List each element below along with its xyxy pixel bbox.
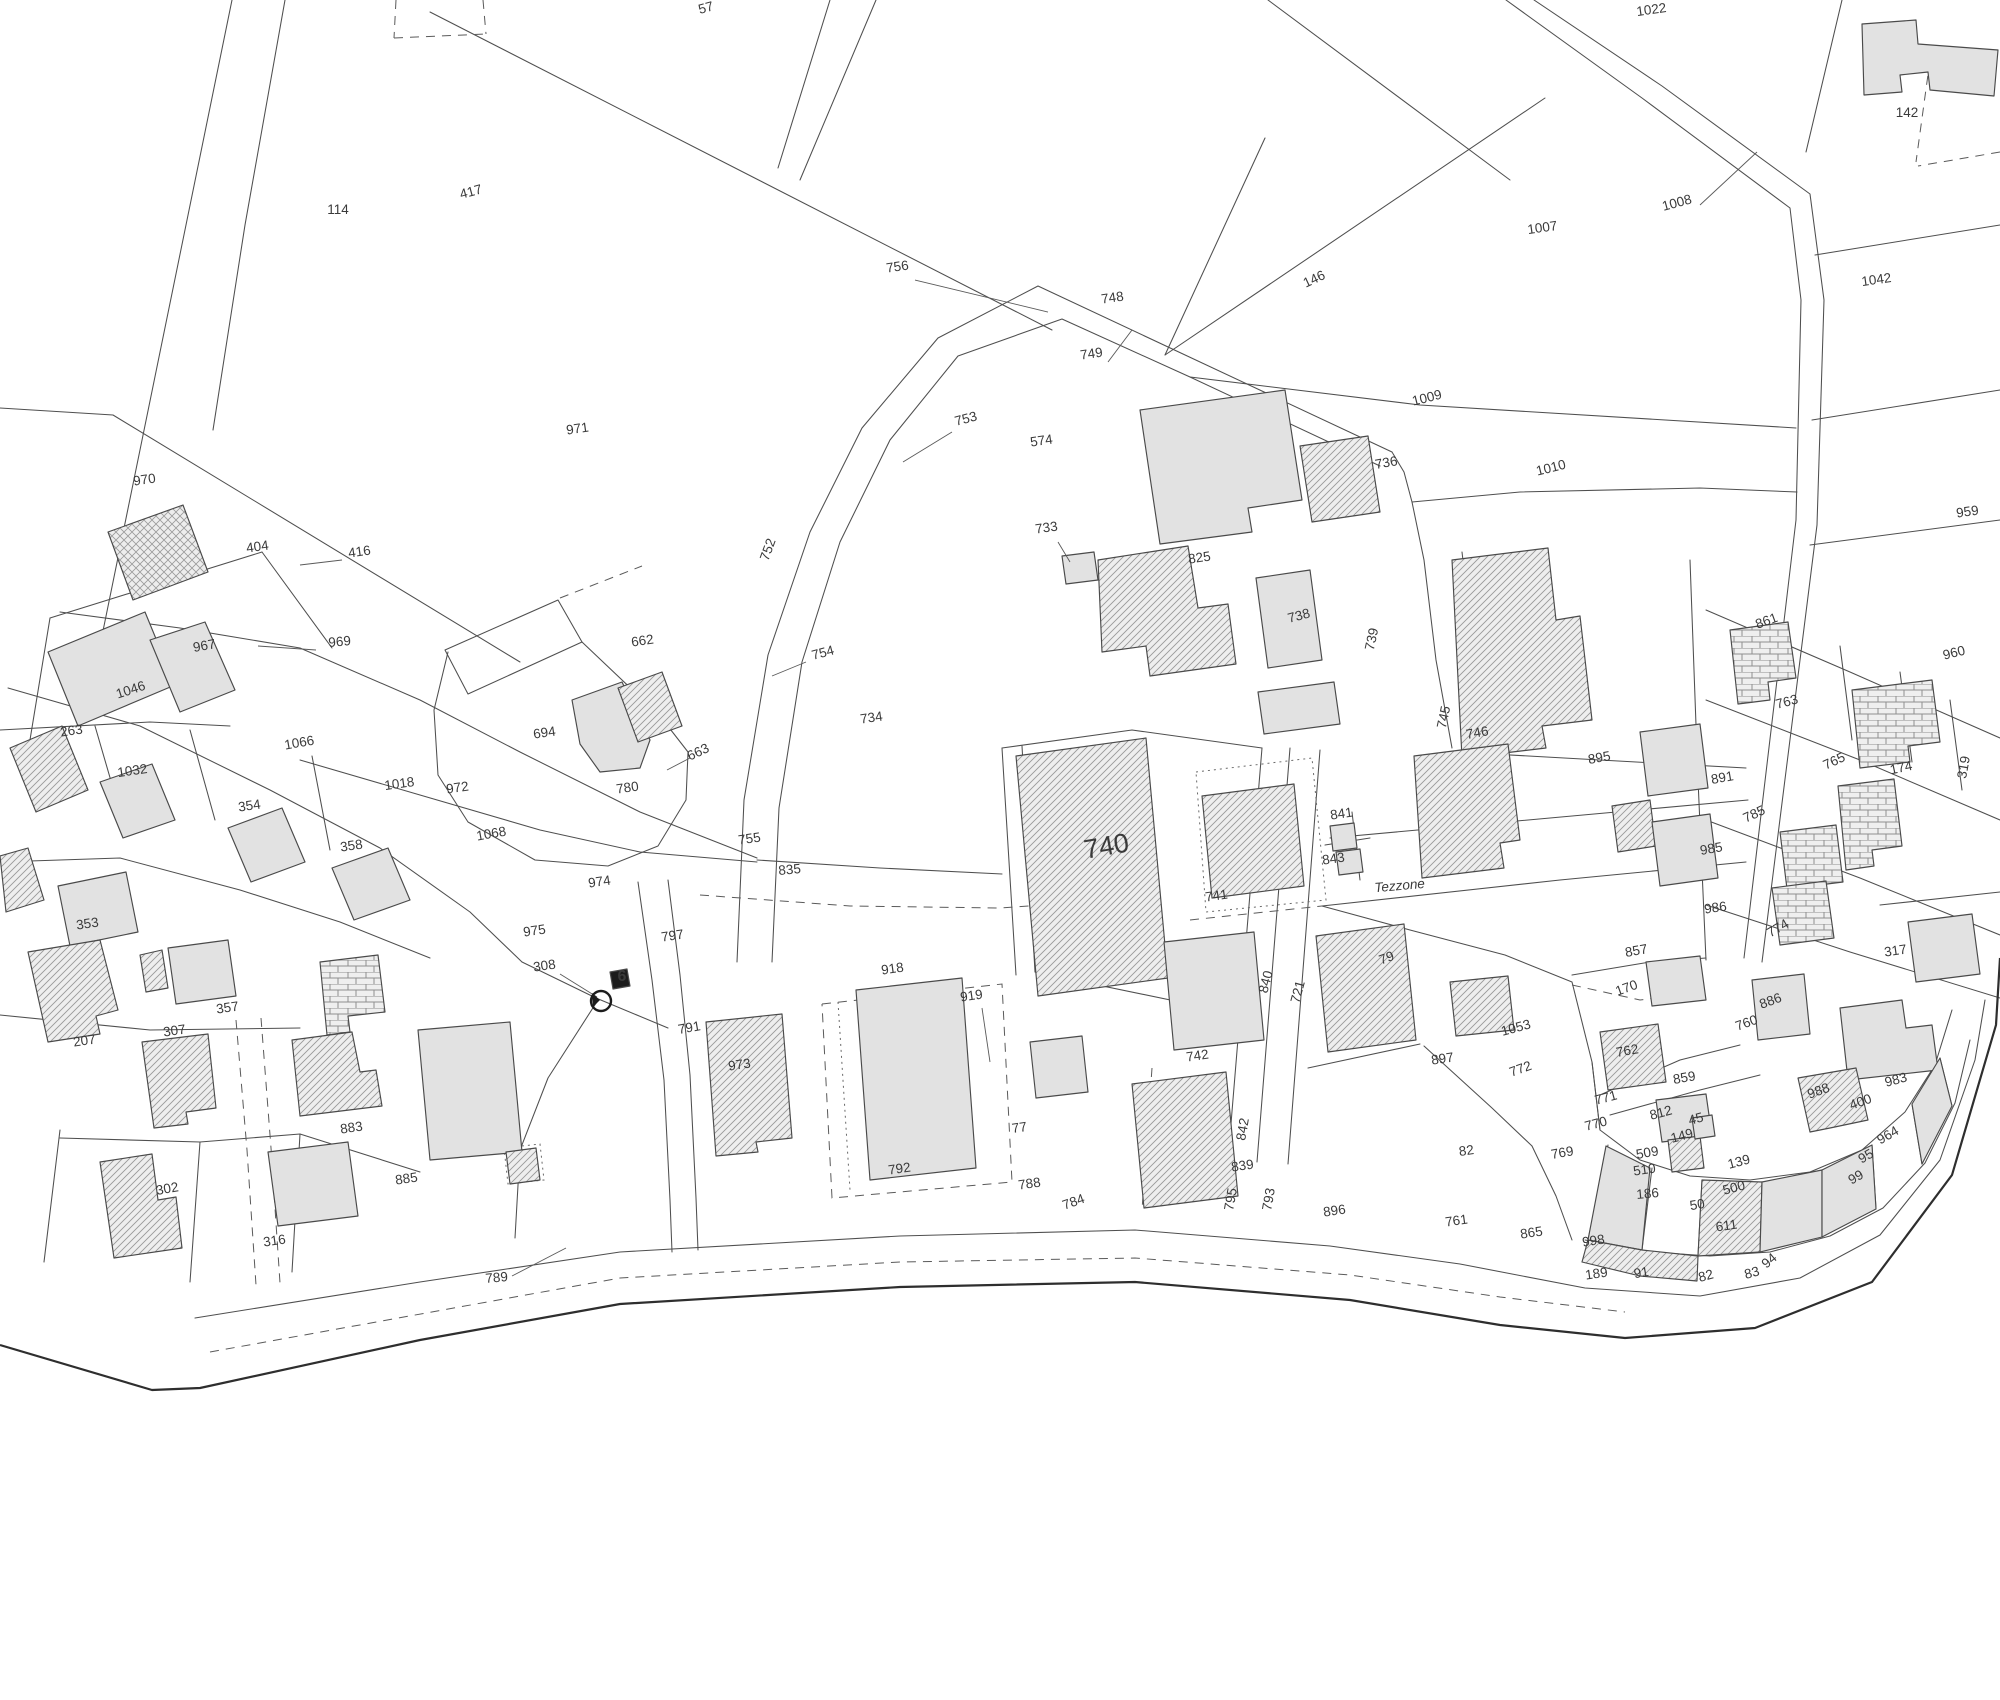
parcel-label-357: 357 bbox=[215, 999, 239, 1017]
parcel-label-146: 146 bbox=[1301, 267, 1328, 290]
building-footprint bbox=[1730, 622, 1796, 704]
parcel-label-742: 742 bbox=[1185, 1047, 1209, 1065]
building-footprint bbox=[1852, 680, 1940, 768]
parcel-label-765: 765 bbox=[1821, 749, 1848, 772]
building-footprint bbox=[1098, 546, 1236, 676]
parcel-label-263: 263 bbox=[59, 722, 83, 740]
parcel-label-842: 842 bbox=[1233, 1117, 1252, 1142]
parcel-line bbox=[300, 760, 757, 862]
building-footprint bbox=[1132, 1072, 1238, 1208]
parcel-label-998: 998 bbox=[1581, 1232, 1605, 1250]
parcel-label-969: 969 bbox=[328, 633, 352, 650]
parcel-line bbox=[778, 0, 830, 168]
building-footprint bbox=[292, 1032, 382, 1116]
label-leader-line bbox=[258, 646, 316, 650]
building-footprint bbox=[48, 612, 175, 726]
building-footprint bbox=[268, 1142, 358, 1226]
parcel-line bbox=[190, 730, 215, 820]
parcel-label-82: 82 bbox=[1458, 1142, 1475, 1159]
parcel-label-404: 404 bbox=[245, 537, 270, 555]
parcel-label-749: 749 bbox=[1079, 345, 1103, 363]
building-footprint bbox=[1414, 744, 1520, 878]
parcel-label-895: 895 bbox=[1587, 748, 1612, 767]
building-footprint bbox=[706, 1014, 792, 1156]
parcel-label-986: 986 bbox=[1703, 899, 1727, 917]
label-leader-line bbox=[982, 1008, 990, 1062]
parcel-label-835: 835 bbox=[778, 861, 802, 878]
building-footprint bbox=[142, 1034, 216, 1128]
parcel-label-974: 974 bbox=[587, 872, 612, 890]
building-footprint bbox=[1780, 825, 1843, 889]
parcel-label-6: 6 bbox=[618, 968, 627, 985]
parcel-label-736: 736 bbox=[1374, 453, 1399, 472]
parcel-label-883: 883 bbox=[339, 1119, 363, 1137]
parcel-label-960: 960 bbox=[1941, 643, 1966, 663]
parcel-label-142: 142 bbox=[1896, 105, 1919, 120]
parcel-label-416: 416 bbox=[347, 543, 371, 561]
building-footprint bbox=[28, 940, 118, 1042]
parcel-label-748: 748 bbox=[1100, 289, 1124, 307]
building-footprint bbox=[168, 940, 236, 1004]
parcel-label-139: 139 bbox=[1726, 1151, 1752, 1171]
label-leader-line bbox=[1700, 152, 1757, 205]
parcel-label-891: 891 bbox=[1710, 768, 1735, 787]
building-footprints bbox=[0, 20, 1998, 1281]
parcel-label-857: 857 bbox=[1624, 941, 1649, 960]
label-leader-line bbox=[512, 1248, 566, 1276]
parcel-label-918: 918 bbox=[880, 960, 904, 978]
parcel-label-189: 189 bbox=[1584, 1265, 1608, 1283]
parcel-label-754: 754 bbox=[810, 642, 836, 662]
dashed-boundary bbox=[1190, 906, 1322, 920]
parcel-line bbox=[0, 722, 230, 730]
building-footprint bbox=[1164, 932, 1264, 1050]
parcel-label-897: 897 bbox=[1430, 1050, 1454, 1068]
parcel-line bbox=[44, 1130, 60, 1262]
label-leader-line bbox=[903, 432, 952, 462]
building-footprint bbox=[228, 808, 305, 882]
parcel-label-761: 761 bbox=[1444, 1212, 1468, 1230]
building-footprint bbox=[1258, 682, 1340, 734]
building-footprint bbox=[506, 1148, 540, 1184]
parcel-line bbox=[1165, 138, 1265, 355]
parcel-label-114: 114 bbox=[327, 202, 349, 217]
parcel-label-82: 82 bbox=[1697, 1266, 1715, 1284]
parcel-label-316: 316 bbox=[262, 1232, 286, 1250]
parcel-label-663: 663 bbox=[685, 740, 712, 763]
parcel-line bbox=[1840, 646, 1852, 740]
building-footprint bbox=[58, 872, 138, 946]
parcel-label-964: 964 bbox=[1874, 1123, 1901, 1147]
parcel-label-755: 755 bbox=[737, 830, 761, 848]
parcel-label-985: 985 bbox=[1699, 839, 1724, 858]
parcel-label-788: 788 bbox=[1017, 1175, 1041, 1193]
parcel-label-973: 973 bbox=[727, 1056, 751, 1074]
parcel-label-721: 721 bbox=[1287, 979, 1307, 1005]
parcel-label-970: 970 bbox=[132, 471, 156, 489]
parcel-label-186: 186 bbox=[1636, 1185, 1660, 1202]
dashed-boundary bbox=[1918, 152, 2000, 166]
building-footprint bbox=[320, 955, 385, 1035]
parcel-line bbox=[515, 1000, 598, 1238]
cadastral-map-viewport: 5710221421144177567487491007100814610429… bbox=[0, 0, 2000, 1700]
parcel-label-1009: 1009 bbox=[1411, 387, 1444, 409]
parcel-line bbox=[1806, 0, 1842, 152]
parcel-label-Tezzone: Tezzone bbox=[1374, 876, 1426, 895]
parcel-label-785: 785 bbox=[1741, 802, 1768, 825]
parcel-label-509: 509 bbox=[1635, 1143, 1660, 1162]
parcel-label-896: 896 bbox=[1322, 1202, 1346, 1220]
parcel-label-739: 739 bbox=[1362, 626, 1381, 651]
parcel-label-840: 840 bbox=[1255, 969, 1275, 995]
parcel-label-795: 795 bbox=[1221, 1187, 1240, 1212]
parcel-label-752: 752 bbox=[757, 536, 779, 562]
dashed-boundary bbox=[236, 1020, 256, 1285]
label-leader-line bbox=[560, 974, 597, 997]
parcel-label-1066: 1066 bbox=[283, 733, 315, 753]
parcel-label-771: 771 bbox=[1593, 1087, 1619, 1107]
parcel-label-353: 353 bbox=[75, 915, 99, 933]
dashed-boundary bbox=[700, 895, 1058, 908]
parcel-label-959: 959 bbox=[1955, 503, 1979, 521]
parcel-label-1008: 1008 bbox=[1660, 192, 1693, 214]
parcel-label-319: 319 bbox=[1954, 755, 1973, 780]
label-leader-line bbox=[1108, 330, 1132, 362]
building-footprint bbox=[1140, 390, 1302, 544]
parcel-label-1022: 1022 bbox=[1635, 0, 1667, 19]
building-footprint bbox=[1862, 20, 1998, 96]
parcel-label-839: 839 bbox=[1230, 1157, 1254, 1175]
parcel-line bbox=[1165, 98, 1545, 355]
parcel-label-77: 77 bbox=[1011, 1119, 1028, 1136]
parcel-line bbox=[312, 756, 330, 850]
building-footprint bbox=[1330, 823, 1357, 851]
building-footprint bbox=[1030, 1036, 1088, 1098]
parcel-label-307: 307 bbox=[162, 1022, 186, 1040]
parcel-label-763: 763 bbox=[1774, 691, 1800, 711]
parcel-label-734: 734 bbox=[859, 708, 884, 726]
parcel-label-841: 841 bbox=[1329, 805, 1353, 823]
parcel-label-791: 791 bbox=[677, 1018, 702, 1037]
parcel-line bbox=[430, 12, 1052, 330]
parcel-label-789: 789 bbox=[485, 1269, 509, 1286]
parcel-line bbox=[190, 1142, 200, 1282]
parcel-label-793: 793 bbox=[1259, 1187, 1278, 1212]
parcel-label-1007: 1007 bbox=[1526, 218, 1558, 237]
parcel-line bbox=[1815, 225, 2000, 255]
building-footprint bbox=[1772, 881, 1834, 945]
parcel-label-741: 741 bbox=[1204, 887, 1228, 905]
building-footprint bbox=[1908, 914, 1980, 982]
parcel-line bbox=[445, 600, 582, 694]
parcel-label-510: 510 bbox=[1632, 1161, 1656, 1179]
parcel-label-975: 975 bbox=[522, 922, 546, 940]
parcel-line bbox=[1810, 520, 2000, 545]
parcel-label-770: 770 bbox=[1583, 1113, 1609, 1133]
parcel-label-57: 57 bbox=[697, 0, 715, 17]
parcel-label-354: 354 bbox=[237, 796, 262, 814]
survey-wedge-icon bbox=[592, 993, 600, 1007]
building-footprint bbox=[100, 1154, 182, 1258]
parcel-label-784: 784 bbox=[1060, 1191, 1087, 1213]
parcel-line bbox=[213, 0, 285, 430]
parcel-line bbox=[1392, 452, 1452, 748]
parcel-label-972: 972 bbox=[445, 779, 469, 797]
parcel-label-753: 753 bbox=[953, 408, 979, 428]
survey-symbols bbox=[591, 991, 611, 1011]
parcel-label-865: 865 bbox=[1519, 1224, 1543, 1242]
parcel-label-50: 50 bbox=[1689, 1196, 1706, 1213]
parcel-line bbox=[1268, 0, 1510, 180]
parcel-label-843: 843 bbox=[1321, 850, 1345, 868]
parcel-label-694: 694 bbox=[532, 723, 557, 741]
parcel-label-574: 574 bbox=[1029, 431, 1054, 449]
parcel-label-919: 919 bbox=[959, 987, 983, 1005]
building-footprint bbox=[332, 848, 410, 920]
dashed-boundary bbox=[483, 0, 486, 34]
parcel-label-358: 358 bbox=[339, 837, 363, 855]
parcel-line bbox=[1412, 488, 1797, 502]
parcel-label-207: 207 bbox=[72, 1032, 96, 1050]
parcel-label-611: 611 bbox=[1715, 1217, 1738, 1235]
parcel-label-756: 756 bbox=[885, 258, 909, 276]
parcel-label-859: 859 bbox=[1672, 1068, 1697, 1087]
parcel-label-1068: 1068 bbox=[475, 824, 507, 844]
building-footprint bbox=[108, 505, 208, 600]
building-footprint bbox=[1016, 738, 1168, 996]
parcel-label-83: 83 bbox=[1743, 1263, 1761, 1281]
parcel-label-1042: 1042 bbox=[1860, 270, 1892, 289]
parcel-label-772: 772 bbox=[1507, 1058, 1533, 1080]
dashed-boundary bbox=[394, 34, 486, 38]
label-leader-line bbox=[300, 560, 342, 565]
parcel-line bbox=[434, 642, 688, 866]
parcel-label-745: 745 bbox=[1434, 704, 1453, 729]
building-footprint bbox=[1202, 784, 1304, 898]
building-footprint bbox=[140, 950, 168, 992]
parcel-label-1010: 1010 bbox=[1535, 457, 1568, 479]
parcel-label-760: 760 bbox=[1733, 1012, 1759, 1034]
parcel-label-417: 417 bbox=[458, 181, 484, 201]
dashed-boundary bbox=[560, 566, 642, 598]
building-footprint bbox=[0, 848, 44, 912]
building-footprint bbox=[418, 1022, 522, 1160]
label-leader-line bbox=[915, 280, 1048, 312]
cadastral-map-svg: 5710221421144177567487491007100814610429… bbox=[0, 0, 2000, 1700]
parcel-label-780: 780 bbox=[615, 779, 639, 797]
parcel-label-792: 792 bbox=[887, 1160, 911, 1178]
building-footprint bbox=[856, 978, 976, 1180]
parcel-label-308: 308 bbox=[532, 957, 556, 975]
parcel-label-825: 825 bbox=[1187, 549, 1211, 567]
dotted-boundary bbox=[838, 1002, 850, 1190]
building-footprint bbox=[1300, 436, 1380, 522]
parcel-line bbox=[1812, 390, 2000, 420]
parcel-label-971: 971 bbox=[565, 420, 589, 438]
dashed-boundary bbox=[394, 0, 396, 38]
building-footprint bbox=[1838, 779, 1902, 870]
parcel-label-797: 797 bbox=[660, 927, 684, 945]
parcel-line bbox=[800, 0, 876, 180]
parcel-line bbox=[0, 408, 520, 662]
building-footprint bbox=[10, 726, 88, 812]
building-footprint bbox=[1646, 956, 1706, 1006]
building-footprint bbox=[1316, 924, 1416, 1052]
parcel-label-91: 91 bbox=[1633, 1264, 1650, 1281]
parcel-label-302: 302 bbox=[155, 1179, 180, 1198]
building-footprint bbox=[1612, 800, 1656, 852]
parcel-label-317: 317 bbox=[1883, 942, 1907, 960]
building-footprint bbox=[1760, 1170, 1822, 1252]
building-footprint bbox=[1640, 724, 1708, 796]
parcel-label-1018: 1018 bbox=[383, 774, 415, 793]
label-leader-line bbox=[667, 758, 690, 770]
parcel-label-170: 170 bbox=[1613, 977, 1639, 999]
parcel-line bbox=[262, 552, 332, 648]
parcel-label-733: 733 bbox=[1034, 519, 1058, 537]
parcel-label-769: 769 bbox=[1550, 1143, 1575, 1162]
parcel-label-662: 662 bbox=[630, 632, 654, 650]
parcel-label-885: 885 bbox=[394, 1170, 418, 1188]
parcel-line bbox=[1002, 748, 1016, 975]
dashed-boundary bbox=[210, 1258, 1625, 1352]
